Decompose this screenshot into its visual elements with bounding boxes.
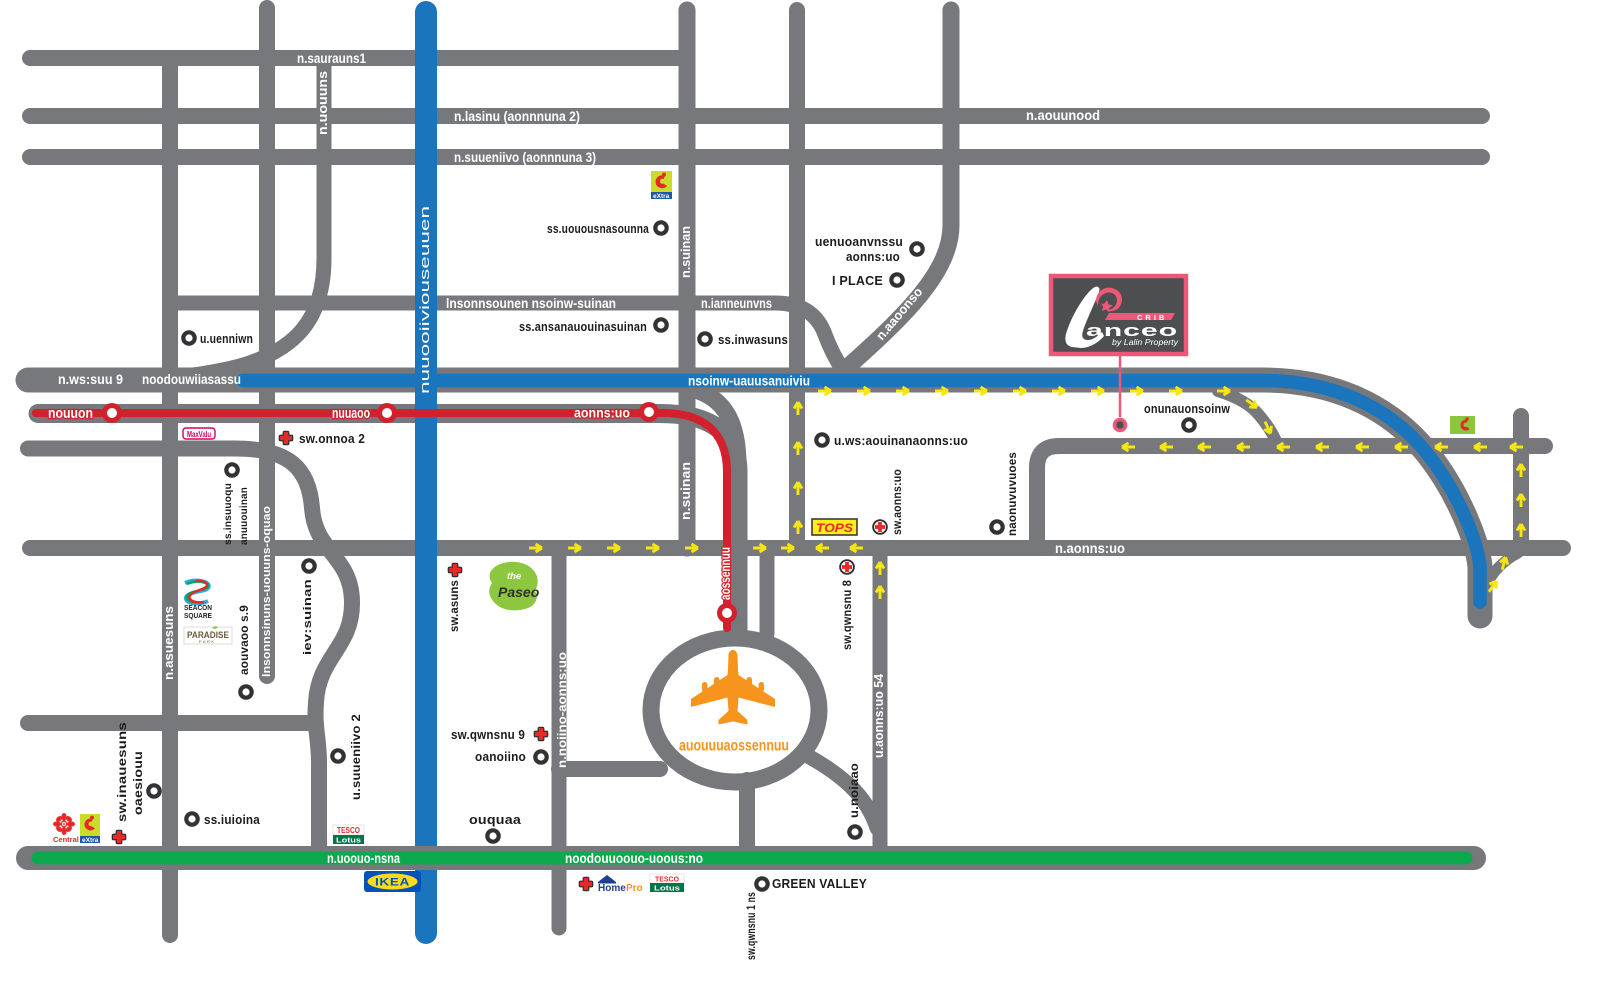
svg-text:nouuon: nouuon xyxy=(48,405,93,422)
svg-text:n.lasinu (aonnnuna 2): n.lasinu (aonnnuna 2) xyxy=(454,109,580,124)
svg-text:n.ws:suu 9: n.ws:suu 9 xyxy=(58,372,123,387)
svg-text:sw.qwnsnu 9: sw.qwnsnu 9 xyxy=(451,728,525,742)
svg-text:ss.ansanauouinasuinan: ss.ansanauouinasuinan xyxy=(519,320,647,334)
svg-text:eXtra: eXtra xyxy=(653,193,670,200)
svg-text:aossennuu: aossennuu xyxy=(718,547,733,600)
svg-text:sw.aonns:uo: sw.aonns:uo xyxy=(892,469,904,535)
svg-text:u.ws:aouinanaonns:uo: u.ws:aouinanaonns:uo xyxy=(834,434,968,448)
svg-text:n.saurauns1: n.saurauns1 xyxy=(297,51,366,66)
svg-text:TESCO: TESCO xyxy=(337,826,360,835)
svg-text:Paseo: Paseo xyxy=(498,584,540,600)
svg-text:aouvaoo s.9: aouvaoo s.9 xyxy=(239,605,251,675)
svg-text:u.aonns:uo 54: u.aonns:uo 54 xyxy=(871,673,886,758)
svg-text:Lotus: Lotus xyxy=(654,884,680,893)
svg-text:SEACON: SEACON xyxy=(184,605,212,612)
svg-text:ss.insuuoqu: ss.insuuoqu xyxy=(222,483,234,545)
svg-text:ouquaa: ouquaa xyxy=(469,813,522,827)
svg-text:nuuaoo: nuuaoo xyxy=(332,405,370,422)
svg-text:sw.onnoa 2: sw.onnoa 2 xyxy=(299,432,365,446)
svg-text:eXtra: eXtra xyxy=(82,837,99,844)
svg-text:SQUARE: SQUARE xyxy=(184,613,212,620)
svg-text:oanoiino: oanoiino xyxy=(475,750,526,764)
svg-text:GREEN VALLEY: GREEN VALLEY xyxy=(772,877,867,891)
svg-text:sw.inauesuns: sw.inauesuns xyxy=(117,722,129,822)
svg-text:n.aonns:uo: n.aonns:uo xyxy=(1055,541,1125,556)
svg-text:iev:suinan: iev:suinan xyxy=(302,579,314,655)
svg-text:n.suinan: n.suinan xyxy=(678,226,693,278)
svg-text:oaesiouu: oaesiouu xyxy=(133,751,145,815)
svg-text:u.noiaao: u.noiaao xyxy=(849,763,861,818)
svg-text:Lotus: Lotus xyxy=(336,836,361,845)
svg-text:uenuoanvnssu: uenuoanvnssu xyxy=(815,235,903,249)
svg-text:n.suinan: n.suinan xyxy=(678,462,693,520)
svg-text:PARK: PARK xyxy=(199,639,216,644)
svg-text:TOPS: TOPS xyxy=(816,521,853,535)
svg-text:n.uouuns: n.uouuns xyxy=(315,71,330,135)
svg-text:auouuuaossennuu: auouuuaossennuu xyxy=(679,738,789,755)
svg-text:u.suueniivo 2: u.suueniivo 2 xyxy=(351,714,363,800)
svg-text:n.uoouo-nsna: n.uoouo-nsna xyxy=(327,851,400,866)
svg-text:noodouuoouo-uoous:no: noodouuoouo-uoous:no xyxy=(565,851,703,866)
svg-text:sw.qwnsnu 1 ns: sw.qwnsnu 1 ns xyxy=(746,892,758,960)
svg-text:lnsonnsounen nsoinw-suinan: lnsonnsounen nsoinw-suinan xyxy=(446,296,616,311)
svg-text:u.uenniwn: u.uenniwn xyxy=(200,332,253,346)
svg-text:naonuvuvuoes: naonuvuvuoes xyxy=(1007,452,1019,536)
svg-text:n.suueniivo (aonnnuna 3): n.suueniivo (aonnnuna 3) xyxy=(454,150,596,165)
svg-text:Home: Home xyxy=(598,883,626,894)
svg-text:TESCO: TESCO xyxy=(655,875,679,884)
svg-text:aonns:uo: aonns:uo xyxy=(846,250,900,264)
svg-text:I PLACE: I PLACE xyxy=(832,274,883,288)
svg-text:MaxValu: MaxValu xyxy=(187,430,211,439)
svg-text:nsoinw-uauusanuiviu: nsoinw-uauusanuiviu xyxy=(688,374,810,389)
svg-text:by Lalin Property: by Lalin Property xyxy=(1112,338,1179,347)
svg-text:Pro: Pro xyxy=(626,883,643,894)
svg-text:IKEA: IKEA xyxy=(375,877,410,889)
svg-text:lnsonnsinuns-uouuns-oquao: lnsonnsinuns-uouuns-oquao xyxy=(261,506,273,677)
svg-text:sw.asuns: sw.asuns xyxy=(449,580,461,632)
svg-text:noodouwiiasassu: noodouwiiasassu xyxy=(142,372,241,387)
svg-text:n.noiino-aonns:uo: n.noiino-aonns:uo xyxy=(557,652,569,768)
svg-text:anuuouinan: anuuouinan xyxy=(238,487,250,545)
svg-text:ss.inwasuns: ss.inwasuns xyxy=(718,333,788,347)
svg-text:Central: Central xyxy=(53,835,79,844)
svg-text:aonns:uo: aonns:uo xyxy=(574,406,630,421)
svg-text:sw.qwnsnu 8: sw.qwnsnu 8 xyxy=(842,580,854,650)
svg-text:n.ianneunvns: n.ianneunvns xyxy=(701,296,772,311)
svg-text:nuuooiiviouseuuen: nuuooiiviouseuuen xyxy=(418,206,432,394)
svg-text:ss.iuioina: ss.iuioina xyxy=(204,813,261,827)
svg-text:n.asuesuns: n.asuesuns xyxy=(161,606,176,680)
svg-text:ss.uouousnasounna: ss.uouousnasounna xyxy=(547,222,650,236)
svg-text:n.aouunood: n.aouunood xyxy=(1026,108,1100,123)
svg-text:onunauonsoinw: onunauonsoinw xyxy=(1144,402,1230,416)
svg-text:the: the xyxy=(507,571,522,582)
